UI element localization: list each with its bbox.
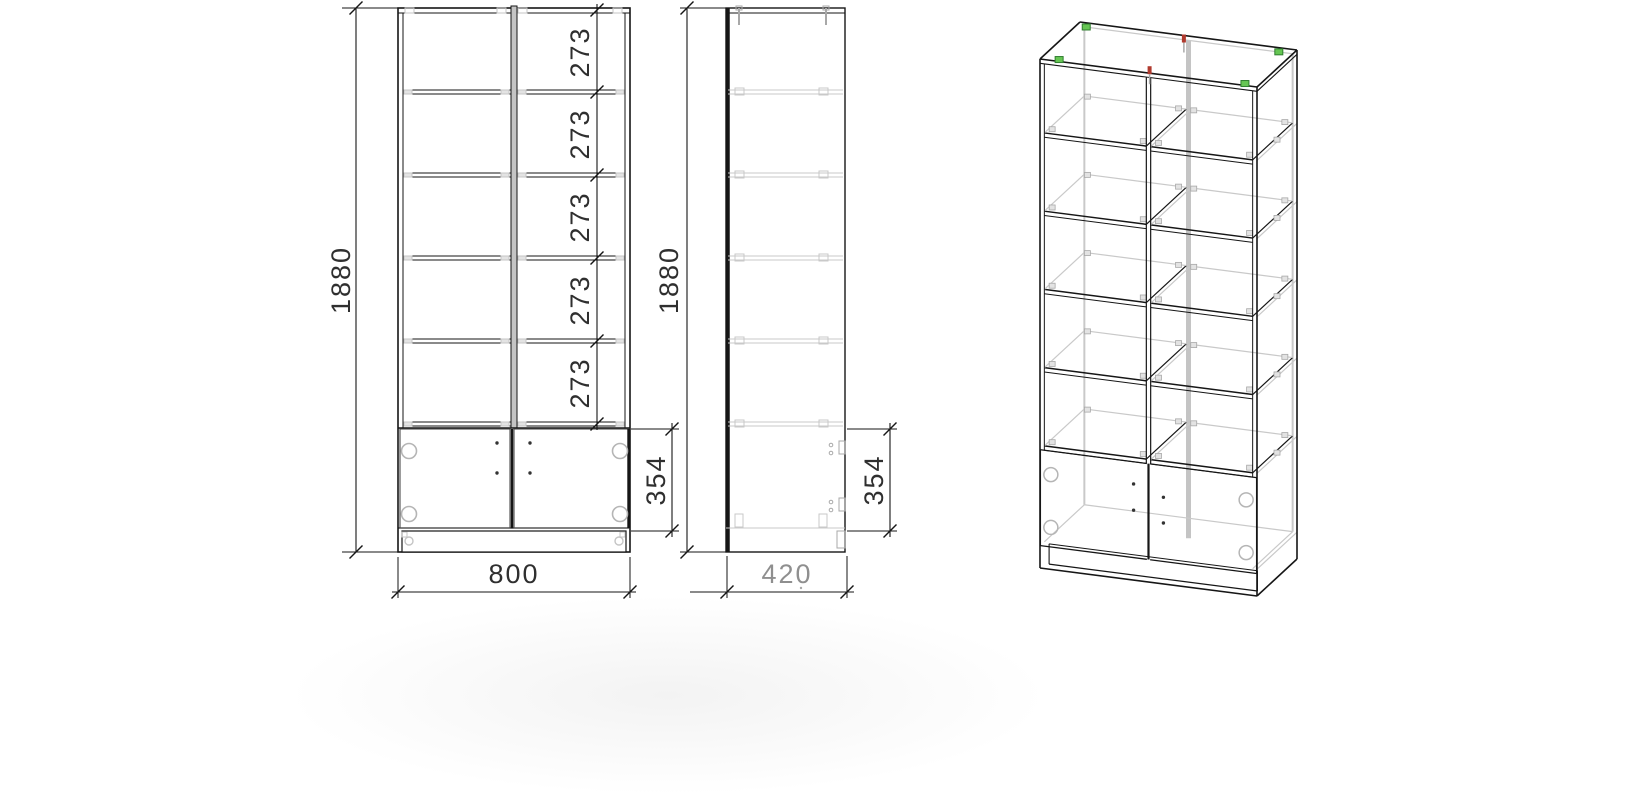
shelf-back-edge xyxy=(1084,252,1186,265)
drawing-canvas: 1880 273 273 273 273 273 354 800 1880 35… xyxy=(0,0,1628,804)
front-width-dim-label: 800 xyxy=(488,559,539,589)
top-right-edge xyxy=(1257,50,1297,87)
shelf-clip xyxy=(1176,262,1182,267)
shelf-clip xyxy=(518,90,526,94)
shelf-clip xyxy=(1191,186,1197,191)
shelf-clip xyxy=(1282,120,1288,125)
shelf-clip xyxy=(1282,354,1288,359)
shelf-clip xyxy=(501,339,509,343)
shelf-clip xyxy=(1191,264,1197,269)
shelf-clip xyxy=(1176,184,1182,189)
door-handle-dot xyxy=(1162,496,1165,499)
shelf-clip xyxy=(518,339,526,343)
door-bottom-edge xyxy=(1041,546,1147,560)
shelf-clip xyxy=(1176,341,1182,346)
shelf-clip xyxy=(1176,106,1182,111)
hinge-icon xyxy=(1239,493,1253,507)
plinth xyxy=(402,531,626,552)
shelf-side-edge xyxy=(1253,436,1293,473)
shelf-clip xyxy=(404,422,412,426)
shelf-side-edge xyxy=(1253,123,1293,160)
shelf-clip xyxy=(1274,450,1280,455)
shelf-clip xyxy=(1049,283,1055,288)
plinth-bottom-edge xyxy=(1049,564,1257,591)
edge-line xyxy=(1044,505,1084,542)
front-door-height-dim-label: 354 xyxy=(641,454,671,505)
shelf-clip xyxy=(1084,251,1090,256)
shelf-side-edge xyxy=(1253,279,1293,316)
isometric-view xyxy=(1040,22,1297,596)
side-view xyxy=(680,2,897,599)
shelf-clip xyxy=(1247,230,1253,235)
shelf-clip xyxy=(1247,465,1253,470)
shelf-clip xyxy=(1049,361,1055,366)
shelf-clip xyxy=(1282,198,1288,203)
shelf-side-edge xyxy=(1253,358,1293,395)
shelf-clip xyxy=(1049,205,1055,210)
door-handle-dot xyxy=(495,471,498,474)
shelf-clip xyxy=(1049,127,1055,132)
shelf-back-edge xyxy=(1191,266,1293,279)
shelf-back-edge xyxy=(1084,409,1186,422)
shelf-back-edge xyxy=(1191,110,1293,123)
shelf-clip xyxy=(1140,138,1146,143)
door-handle-dot xyxy=(528,471,531,474)
shelf-gap-dim-label-4: 273 xyxy=(565,274,595,325)
shelf-clip xyxy=(1084,407,1090,412)
shelf-clip xyxy=(1140,373,1146,378)
shelf-clip xyxy=(1049,440,1055,445)
shelf-clip xyxy=(1140,295,1146,300)
shelf-clip xyxy=(518,256,526,260)
shelf-gap-dim-label-1: 273 xyxy=(565,26,595,77)
shelf-side-edge xyxy=(1253,201,1293,238)
shelf-clip xyxy=(404,173,412,177)
shelf-clip xyxy=(1155,140,1161,145)
side-door-height-dim-label: 354 xyxy=(859,454,889,505)
shelf-clip xyxy=(518,173,526,177)
shelf-back-edge xyxy=(1084,174,1186,187)
door-handle-dot xyxy=(1132,509,1135,512)
shelf-clip xyxy=(1191,108,1197,113)
shelf-gap-dim-label-2: 273 xyxy=(565,108,595,159)
front-height-dim-label: 1880 xyxy=(326,246,356,314)
shelf-clip xyxy=(1155,297,1161,302)
shelf-back-edge xyxy=(1084,96,1186,109)
shelf-clip xyxy=(501,90,509,94)
technical-drawing: 1880 273 273 273 273 273 354 800 1880 35… xyxy=(0,0,1628,804)
green-fitting-icon xyxy=(1055,57,1063,63)
center-divider xyxy=(511,6,517,428)
shelf-clip xyxy=(1191,343,1197,348)
shelf-clip xyxy=(1155,453,1161,458)
shelf-clip xyxy=(1247,387,1253,392)
shelf-clip xyxy=(616,256,624,260)
shelf-side-edge xyxy=(1146,266,1186,303)
front-view xyxy=(342,2,679,599)
shelf-clip xyxy=(1140,451,1146,456)
top-left-edge xyxy=(1040,22,1080,59)
shelf-gap-dim-label-3: 273 xyxy=(565,191,595,242)
shelf-clip xyxy=(404,339,412,343)
shelf-clip xyxy=(404,90,412,94)
shelf-clip xyxy=(1282,433,1288,438)
door-bottom-edge xyxy=(1150,560,1256,574)
plinth-top-edge xyxy=(1049,544,1257,571)
shelf-clip xyxy=(501,173,509,177)
shelf-gap-dim-label-5: 273 xyxy=(565,357,595,408)
shelf-clip xyxy=(1176,419,1182,424)
shelf-clip xyxy=(616,173,624,177)
door-handle-dot xyxy=(1162,521,1165,524)
door-handle-dot xyxy=(495,441,498,444)
shelf-clip xyxy=(616,422,624,426)
green-fitting-icon xyxy=(1275,49,1283,55)
shelf-clip xyxy=(1282,276,1288,281)
door-handle-dot xyxy=(1132,482,1135,485)
shelf-clip xyxy=(616,90,624,94)
shelf-clip xyxy=(616,339,624,343)
hinge-icon xyxy=(1044,520,1058,534)
shelf-clip xyxy=(501,256,509,260)
top-panel-lower-side-edge xyxy=(1257,54,1297,91)
shelf-side-edge xyxy=(1146,344,1186,381)
shelf-side-edge xyxy=(1146,109,1186,146)
shelf-clip xyxy=(1084,94,1090,99)
shelf-clip xyxy=(404,256,412,260)
shelf-side-edge xyxy=(1146,187,1186,224)
shelf-back-edge xyxy=(1191,188,1293,201)
shelf-clip xyxy=(1274,137,1280,142)
shelf-clip xyxy=(1274,215,1280,220)
shelf-clip xyxy=(1084,329,1090,334)
edge-line xyxy=(1253,532,1293,569)
shelf-clip xyxy=(501,422,509,426)
green-fitting-icon xyxy=(1082,24,1090,30)
door-handle-dot xyxy=(528,441,531,444)
shelf-clip xyxy=(1274,372,1280,377)
hinge-icon xyxy=(1239,546,1253,560)
floor-right-edge xyxy=(1257,559,1297,596)
side-depth-dim-label: 420 xyxy=(761,559,812,589)
shelf-clip xyxy=(1155,219,1161,224)
shelf-back-edge xyxy=(1191,423,1293,436)
green-fitting-icon xyxy=(1241,81,1249,87)
shelf-back-edge xyxy=(1191,344,1293,357)
hinge-icon xyxy=(1044,468,1058,482)
shelf-back-edge xyxy=(1084,331,1186,344)
red-fitting-icon xyxy=(1182,35,1186,43)
shelf-side-edge xyxy=(1146,422,1186,459)
shelf-clip xyxy=(1247,152,1253,157)
shelf-clip xyxy=(518,422,526,426)
side-height-dim-label: 1880 xyxy=(654,246,684,314)
shelf-clip xyxy=(1155,375,1161,380)
shelf-clip xyxy=(1140,217,1146,222)
shelf-clip xyxy=(1274,294,1280,299)
shelf-clip xyxy=(1191,421,1197,426)
red-fitting-icon xyxy=(1148,66,1152,74)
floor-front-edge xyxy=(1040,568,1257,596)
shelf-clip xyxy=(1084,172,1090,177)
shelf-clip xyxy=(1247,309,1253,314)
